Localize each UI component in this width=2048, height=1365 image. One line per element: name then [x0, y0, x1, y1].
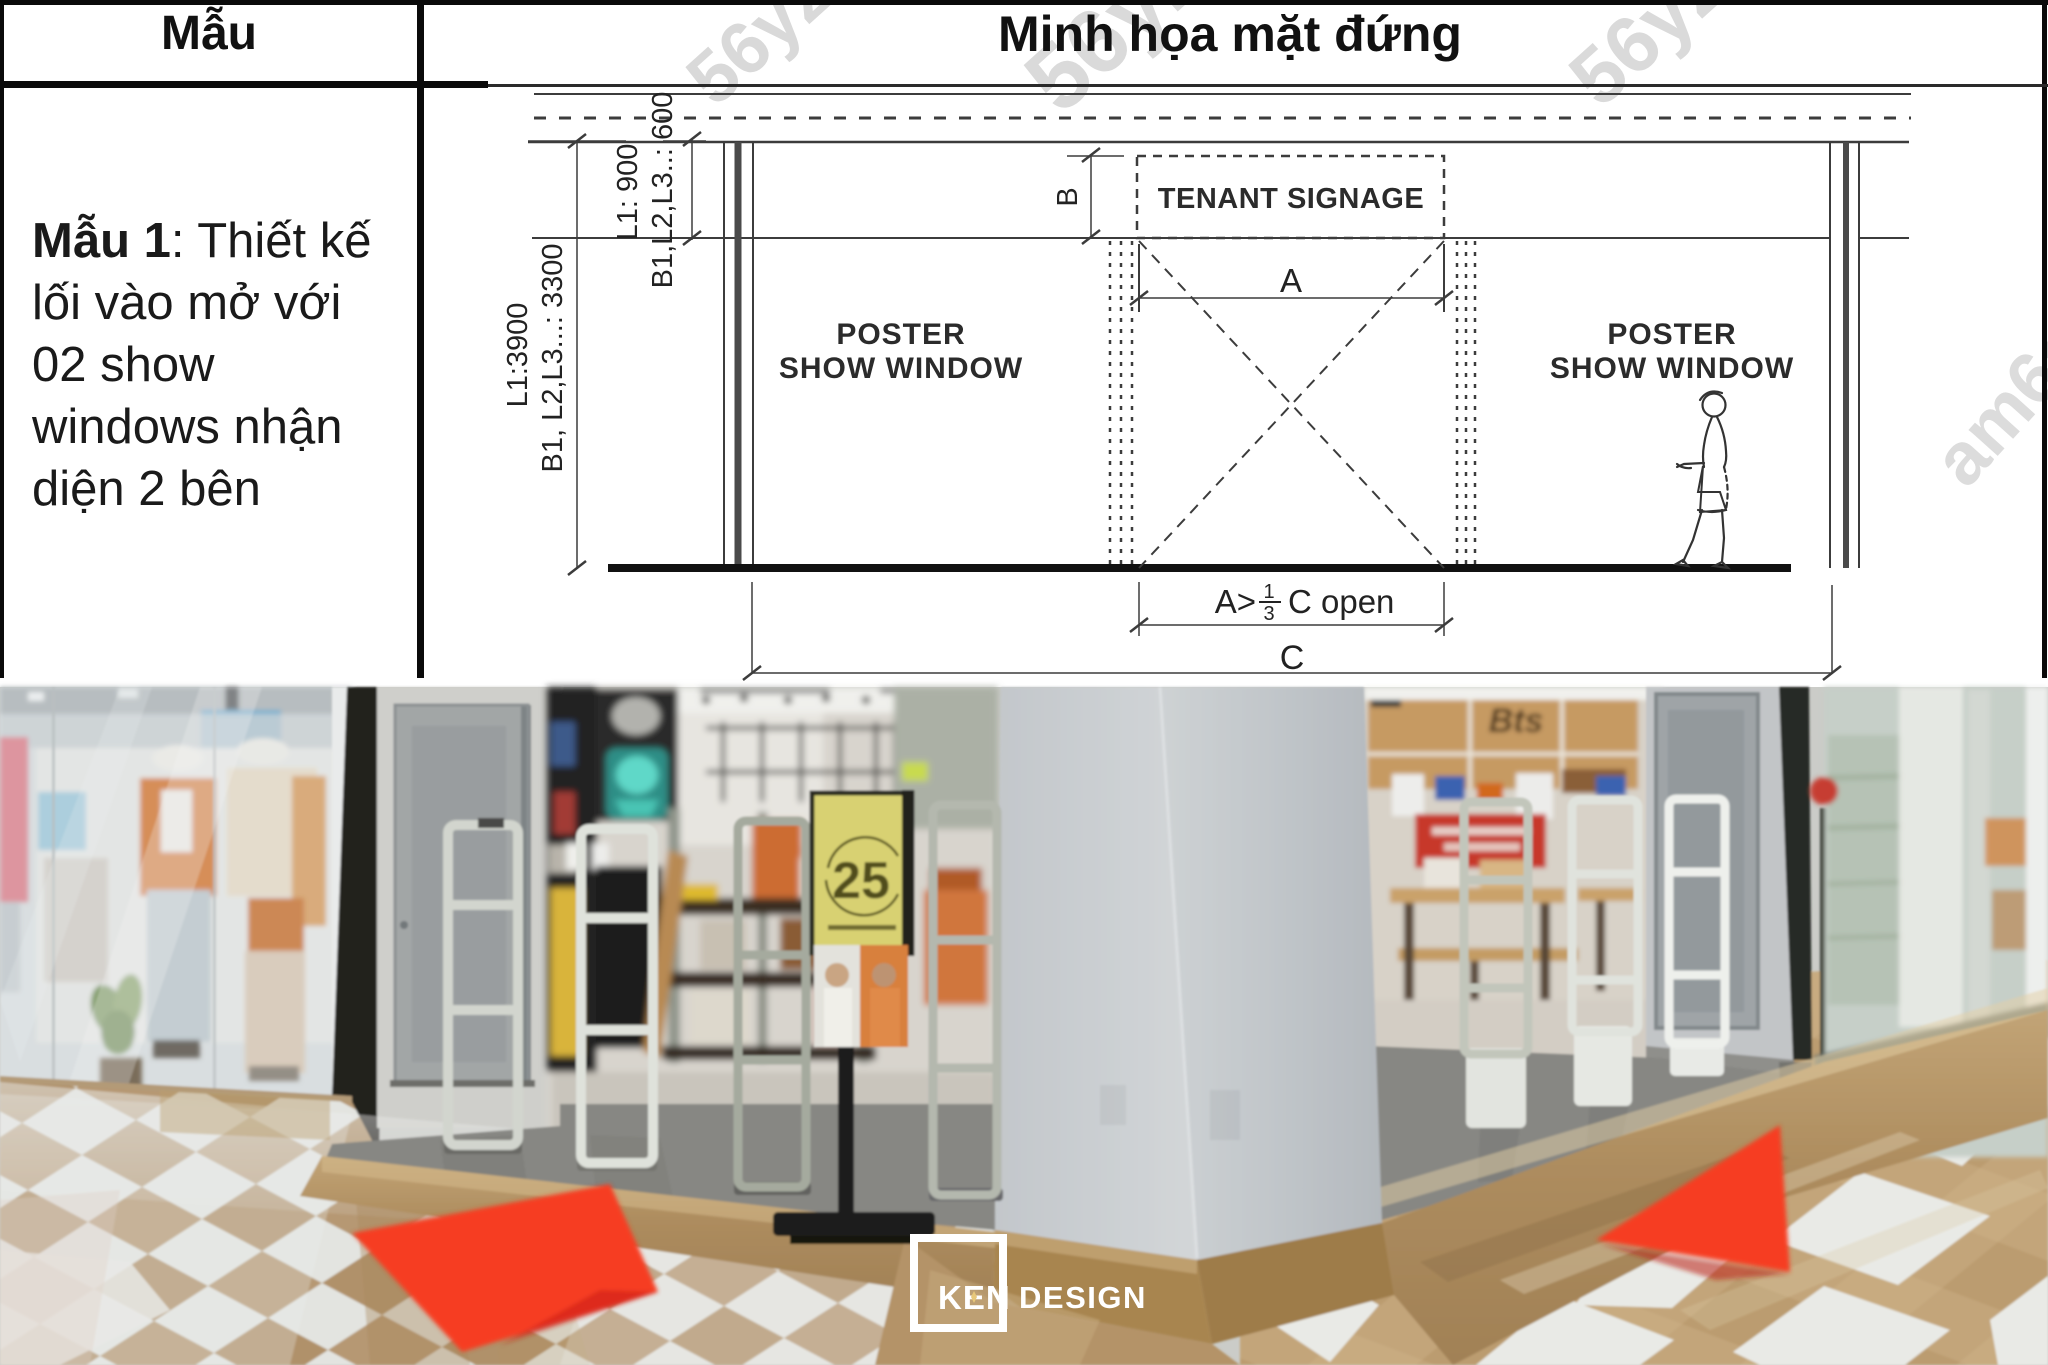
svg-text:Minh họa mặt đứng: Minh họa mặt đứng: [998, 6, 1462, 62]
svg-text:L1: 900: L1: 900: [612, 144, 644, 241]
svg-text:1: 1: [1263, 581, 1274, 603]
svg-text:Mẫu 1: Thiết kế: Mẫu 1: Thiết kế: [32, 214, 372, 268]
svg-text:lối vào mở với: lối vào mở với: [32, 276, 341, 330]
svg-text:B1,L2,L3..: 600: B1,L2,L3..: 600: [647, 92, 679, 289]
svg-text:POSTER: POSTER: [1607, 318, 1736, 351]
svg-text:POSTER: POSTER: [836, 318, 965, 351]
svg-text:A>: A>: [1215, 583, 1256, 620]
svg-text:SHOW WINDOW: SHOW WINDOW: [779, 352, 1023, 385]
svg-text:L1:3900: L1:3900: [502, 303, 534, 408]
svg-text:3: 3: [1263, 603, 1274, 625]
svg-text:25: 25: [832, 852, 890, 910]
svg-text:DESIGN: DESIGN: [1019, 1280, 1147, 1315]
svg-text:02 show: 02 show: [32, 338, 215, 392]
svg-text:B: B: [1052, 187, 1084, 206]
svg-text:diện 2 bên: diện 2 bên: [32, 462, 261, 516]
svg-text:windows nhận: windows nhận: [31, 400, 343, 454]
svg-text:C: C: [1280, 639, 1305, 677]
svg-text:Mẫu: Mẫu: [161, 6, 257, 60]
svg-text:B1, L2,L3...: 3300: B1, L2,L3...: 3300: [537, 244, 569, 473]
svg-text:A: A: [1280, 262, 1302, 299]
svg-text:Bts: Bts: [1489, 702, 1544, 740]
svg-text:SHOW WINDOW: SHOW WINDOW: [1550, 352, 1794, 385]
svg-text:TENANT SIGNAGE: TENANT SIGNAGE: [1158, 183, 1424, 215]
svg-text:C open: C open: [1288, 583, 1394, 620]
